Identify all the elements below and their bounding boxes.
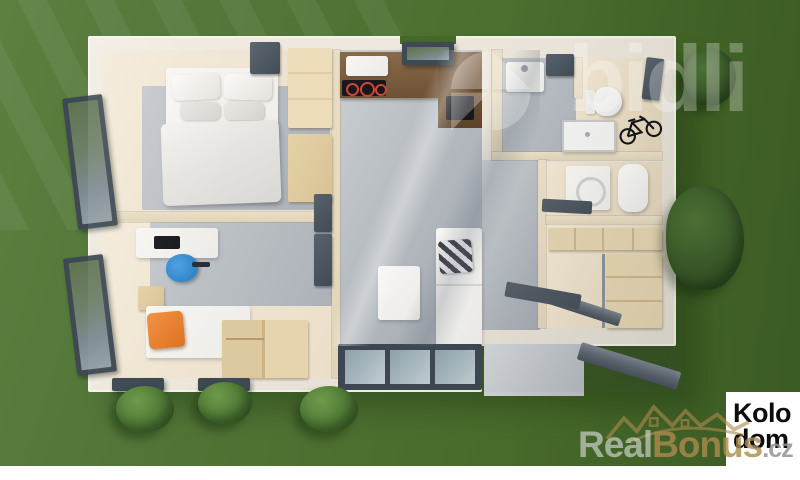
realbonus-watermark: RealBonus.cz (578, 424, 793, 466)
bed-pillow-small (180, 102, 220, 120)
storage-shelf-line (226, 338, 264, 340)
wall-left-rooms (332, 50, 340, 378)
bush (198, 382, 252, 424)
sliding-glass-doors (338, 344, 482, 390)
closet-shelves-top (548, 228, 662, 250)
bed-pillow (171, 73, 220, 101)
water-heater (618, 164, 648, 212)
cooktop-burner (375, 84, 387, 96)
glass-panel (435, 350, 475, 384)
office-chair (166, 254, 198, 282)
window-glass (407, 47, 449, 60)
coffee-table (378, 266, 420, 320)
door-office (314, 234, 332, 286)
bed-pillow-small (224, 102, 264, 120)
wall-bath-tech (492, 152, 662, 160)
office-chair-arm (192, 262, 210, 267)
bed-pillow (224, 73, 273, 101)
orange-pillow (146, 310, 185, 349)
hallway-floor (482, 160, 540, 330)
bush (116, 386, 174, 432)
sofa-cushion-line (436, 284, 482, 286)
door-bedroom (314, 194, 332, 232)
shower-drain (585, 132, 590, 137)
cooktop (342, 80, 386, 96)
laptop (154, 236, 180, 249)
bidli-watermark-text: bidli (568, 32, 746, 126)
cooktop-burner (360, 82, 375, 97)
chevron-pillow (438, 239, 473, 274)
bed-blanket (161, 120, 282, 206)
wall-bedroom-office (102, 212, 332, 222)
bush (300, 386, 358, 432)
glass-panel (390, 350, 430, 384)
window-glass (69, 260, 112, 371)
entry-patio (484, 344, 584, 396)
wall-tech-closet (546, 216, 662, 224)
bottom-border-strip (0, 466, 800, 480)
realbonus-real: Real (578, 424, 652, 465)
door-mat (542, 199, 593, 215)
floorplan-render: Kolo dom bidli RealBonus.cz (0, 0, 800, 480)
bedroom-cabinet (250, 42, 280, 74)
bidli-logo-icon (444, 36, 534, 142)
storage-bench (222, 320, 308, 378)
realbonus-bonus: Bonus (652, 424, 762, 465)
kitchen-sink (346, 56, 388, 76)
bush-tall (666, 186, 744, 290)
wardrobe (288, 48, 332, 128)
cooktop-burner (346, 83, 359, 96)
glass-panel (345, 350, 385, 384)
realbonus-cz: .cz (762, 435, 792, 463)
wardrobe-nook (288, 134, 332, 202)
